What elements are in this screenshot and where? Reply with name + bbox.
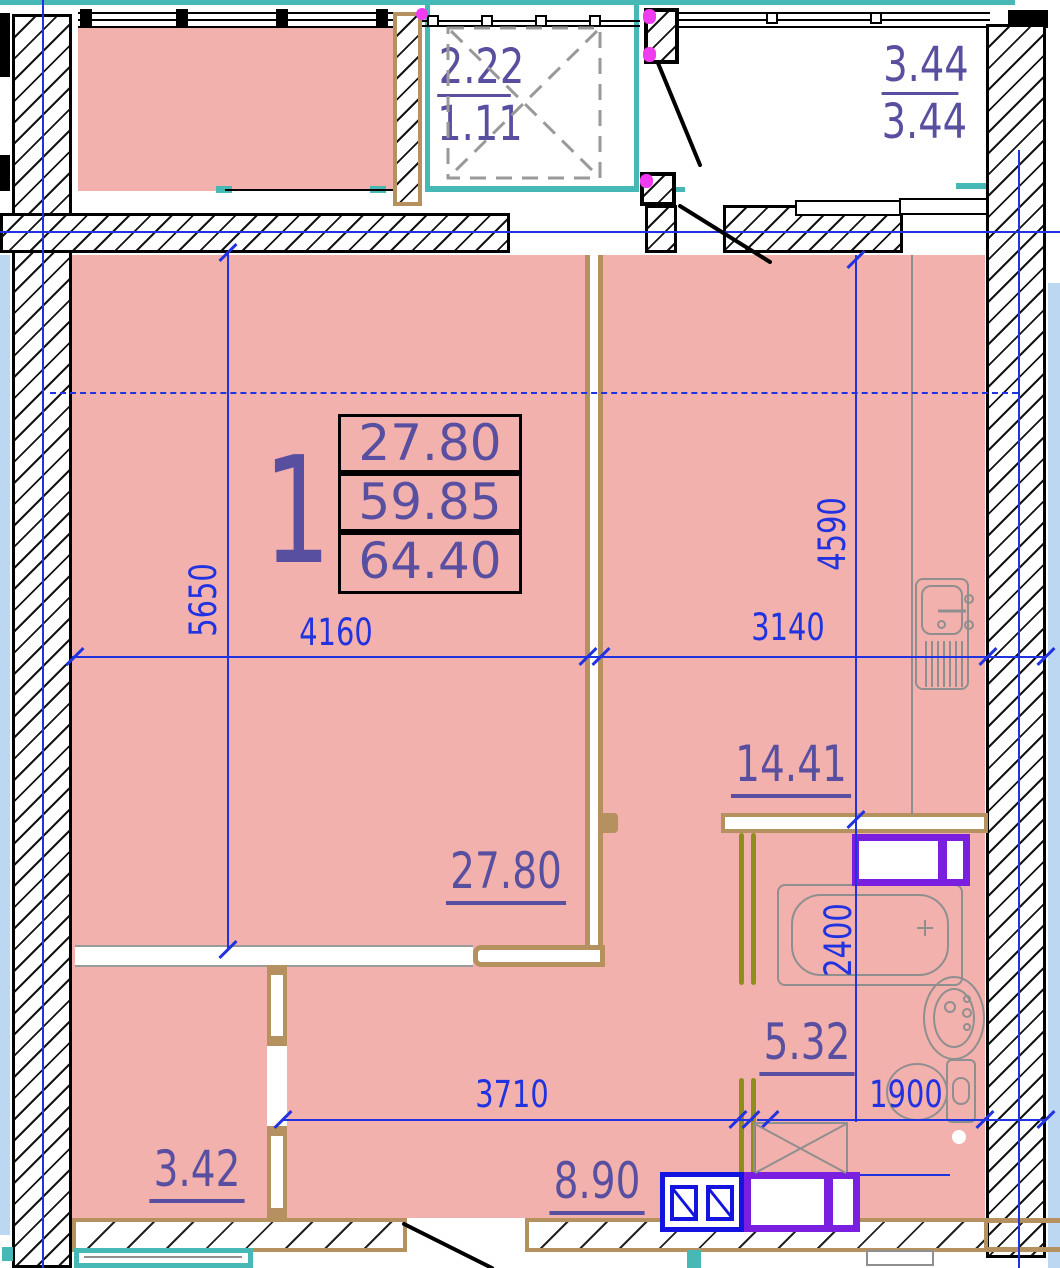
- stove-burner-diagonal: [709, 1189, 733, 1219]
- washbasin-dot: [964, 1024, 970, 1030]
- floor-plan: 5650 4160 3140 4590 2400 3710 1900 27.80…: [0, 0, 1060, 1268]
- kitchen-faucet-knob: [965, 595, 973, 603]
- entrance-door-swing: [658, 63, 700, 165]
- washbasin-dot: [964, 996, 970, 1002]
- interior-door-swing: [680, 206, 770, 262]
- bottom-door-swing: [404, 1224, 492, 1268]
- stove-burner-diagonal: [673, 1189, 697, 1219]
- washbasin-drain: [945, 1002, 955, 1012]
- annotations-overlay: [0, 0, 1060, 1268]
- washbasin-dot: [963, 1009, 971, 1017]
- kitchen-faucet-knob: [965, 621, 973, 629]
